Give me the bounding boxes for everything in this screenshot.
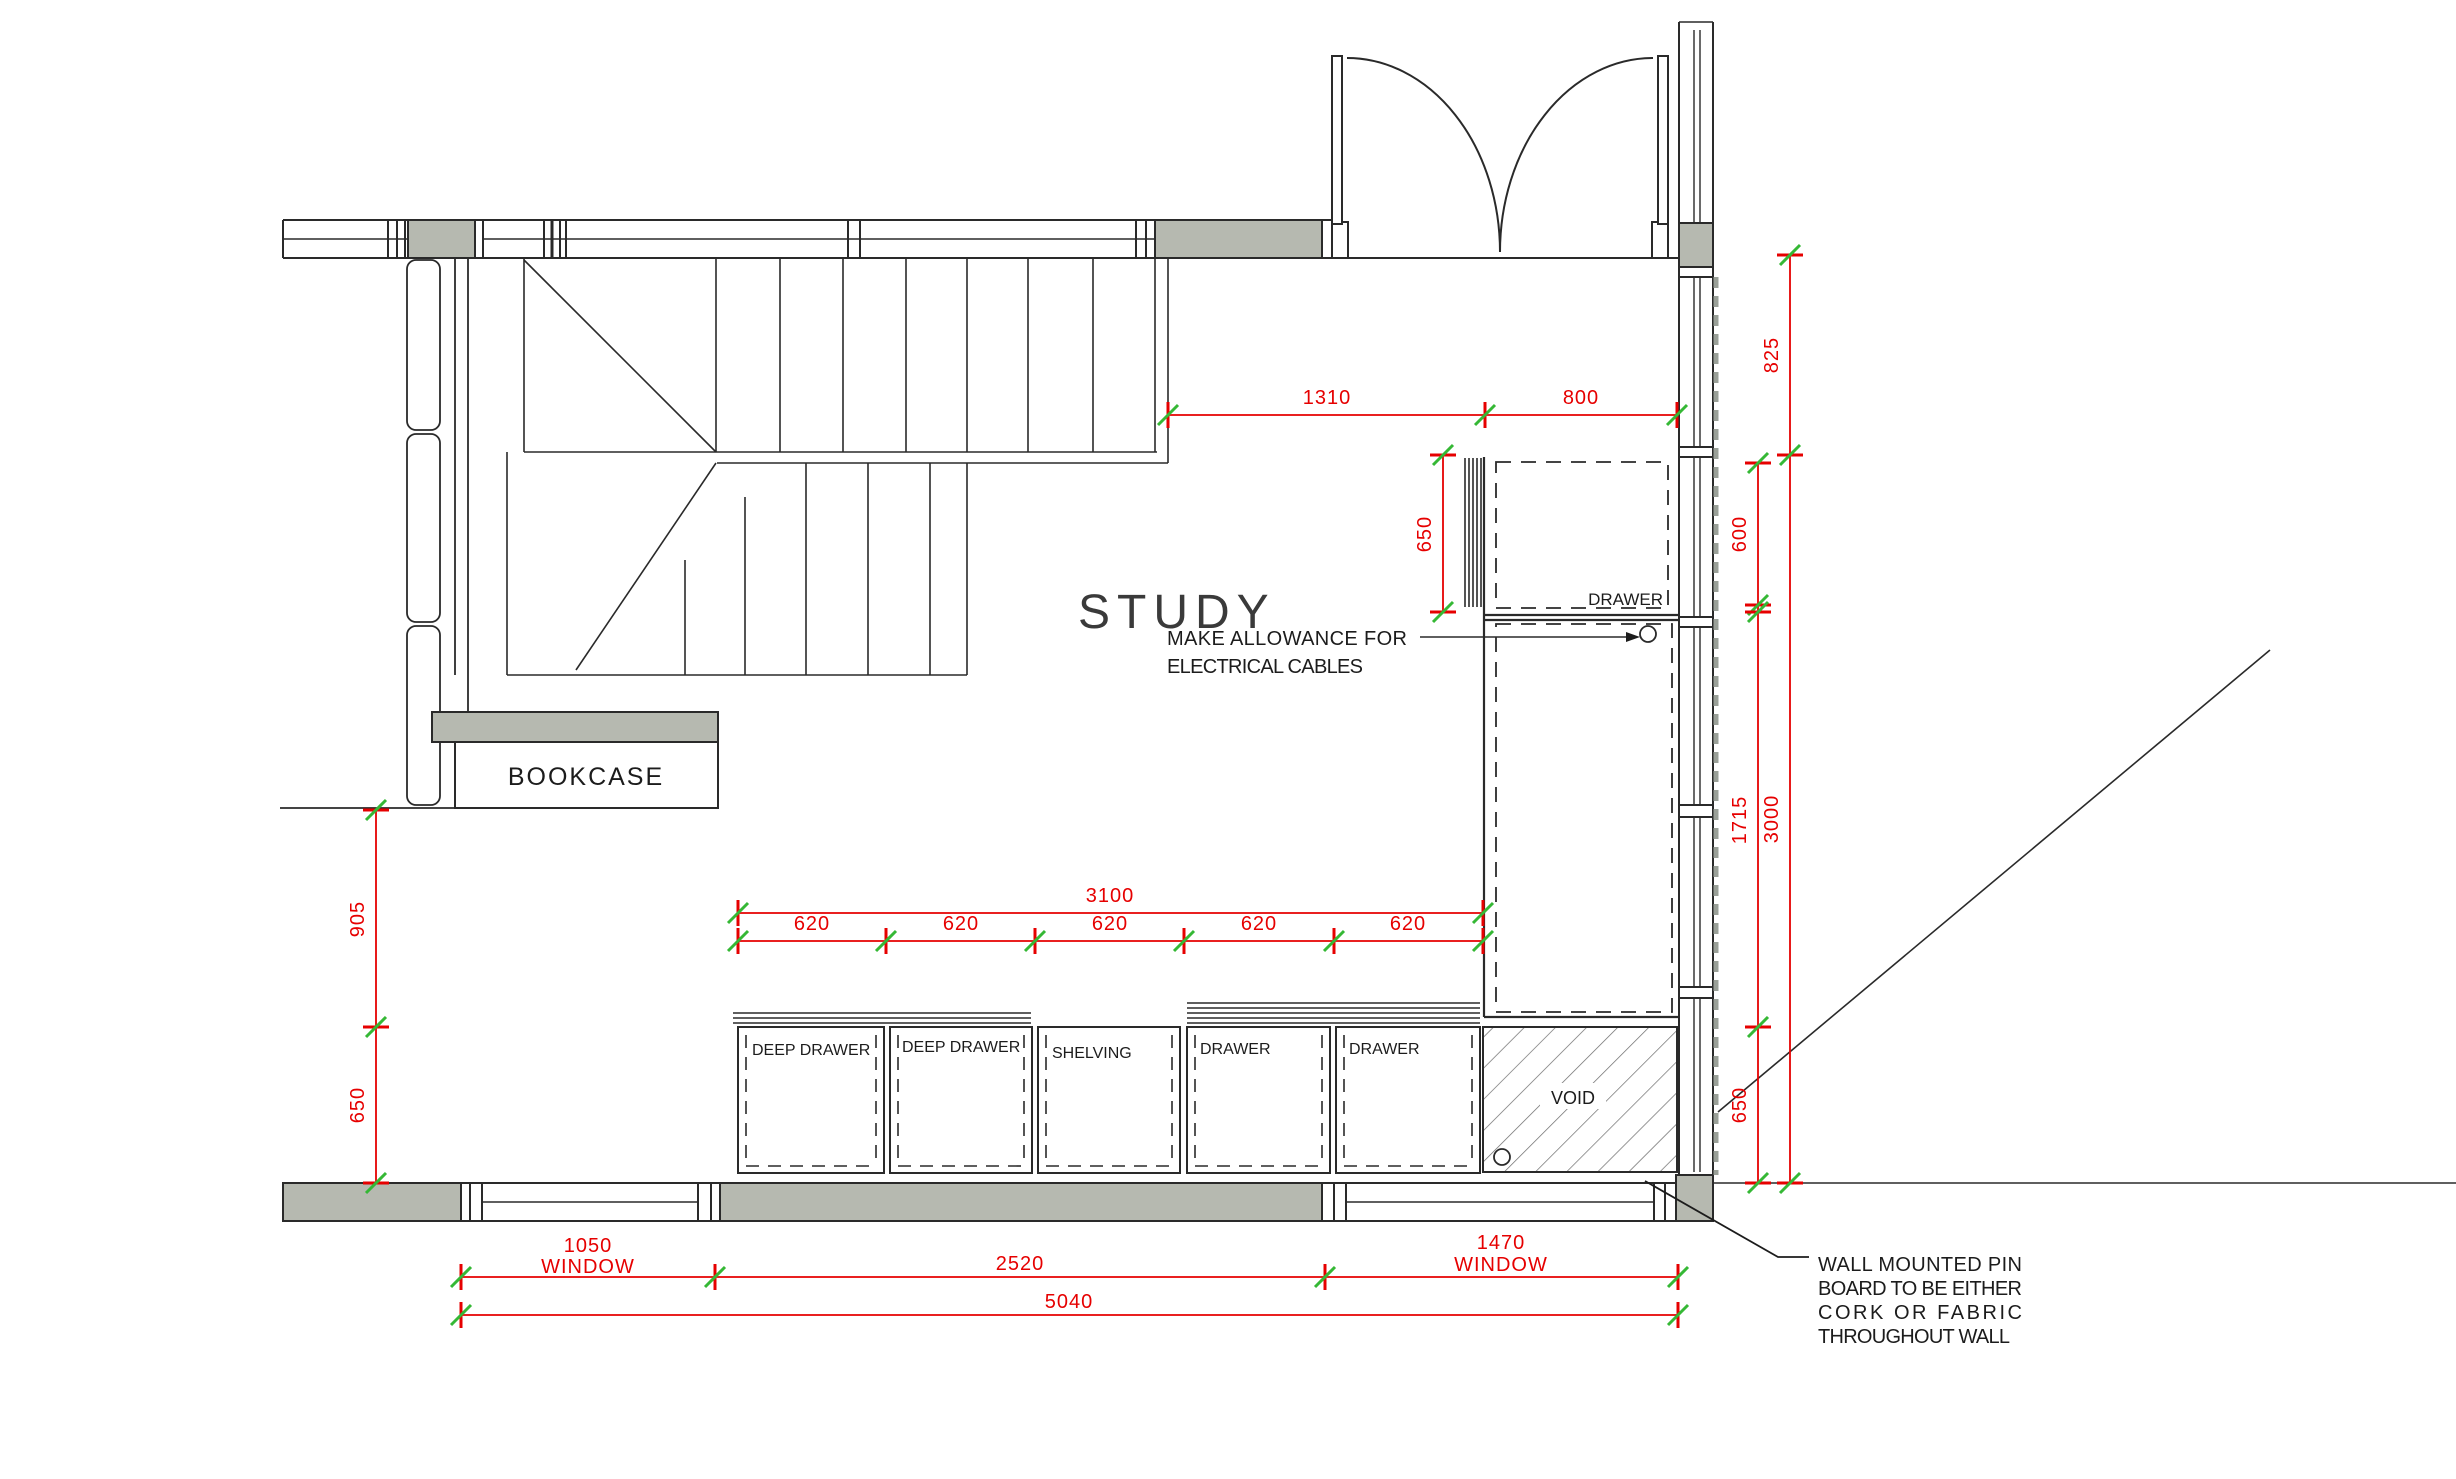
double-door <box>1332 56 1668 258</box>
wall-panel <box>407 434 440 622</box>
dim-600: 600 <box>1729 516 1751 552</box>
stair-winder-diagonal-lower <box>576 463 716 670</box>
leader-line <box>1645 1181 1809 1257</box>
dim-800: 800 <box>1563 387 1599 409</box>
cabinet-label-5: DRAWER <box>1349 1041 1420 1058</box>
dim-1050: 1050 <box>564 1235 613 1257</box>
staircase <box>507 259 1168 675</box>
dim-620-4: 620 <box>1241 913 1277 935</box>
dim-3000: 3000 <box>1761 795 1783 844</box>
svg-text:ELECTRICAL CABLES: ELECTRICAL CABLES <box>1167 656 1363 678</box>
dim-905: 905 <box>347 901 369 937</box>
desk-drawer-label: DRAWER <box>1588 590 1663 609</box>
dim-825: 825 <box>1761 337 1783 373</box>
dim-1470-window: WINDOW <box>1454 1254 1548 1276</box>
svg-text:MAKE ALLOWANCE FOR: MAKE ALLOWANCE FOR <box>1167 628 1407 650</box>
void-label: VOID <box>1551 1088 1595 1108</box>
sight-line <box>1718 650 2270 1112</box>
cable-grommet <box>1640 626 1656 642</box>
cabinet-label-3: SHELVING <box>1052 1045 1132 1062</box>
void-grommet <box>1494 1149 1510 1165</box>
door-jamb-right <box>1652 222 1668 258</box>
cabinet-label-4: DRAWER <box>1200 1041 1271 1058</box>
dim-1470: 1470 <box>1477 1232 1526 1254</box>
dim-1715: 1715 <box>1729 796 1751 845</box>
dim-1050-window: WINDOW <box>541 1256 635 1278</box>
door-jamb-left <box>1332 222 1348 258</box>
worktop-lines-left <box>733 1013 1031 1023</box>
cabinet-run <box>733 1003 1480 1173</box>
dim-620-1: 620 <box>794 913 830 935</box>
stair-winder-diagonal <box>524 260 716 452</box>
door-leaf-left <box>1332 56 1342 224</box>
floorplan-drawing: BOOKCASE DRAWER <box>0 0 2456 1479</box>
dim-620-2: 620 <box>943 913 979 935</box>
desk-lower-outline <box>1496 624 1672 1012</box>
dim-1310: 1310 <box>1303 387 1352 409</box>
drawer-unit-outline <box>1496 462 1668 608</box>
door-leaf-right <box>1658 56 1668 224</box>
dim-5040: 5040 <box>1045 1291 1094 1313</box>
desk-return <box>1420 457 1679 1017</box>
dim-620-3: 620 <box>1092 913 1128 935</box>
bookcase: BOOKCASE <box>432 712 718 808</box>
electrical-note: MAKE ALLOWANCE FOR ELECTRICAL CABLES <box>1167 628 1407 678</box>
door-swing-arc-left <box>1347 58 1500 252</box>
svg-text:BOARD TO BE EITHER: BOARD TO BE EITHER <box>1818 1278 2022 1300</box>
dim-right-650: 650 <box>1729 1087 1751 1123</box>
dim-desk-650: 650 <box>1414 516 1436 552</box>
door-swing-arc-right <box>1500 58 1653 252</box>
floorplan-canvas: BOOKCASE DRAWER <box>0 0 2456 1479</box>
svg-text:WALL MOUNTED PIN: WALL MOUNTED PIN <box>1818 1254 2022 1276</box>
flex-strip <box>1465 458 1481 607</box>
dim-2520: 2520 <box>996 1253 1045 1275</box>
worktop-lines-right <box>1187 1003 1480 1023</box>
dim-3100: 3100 <box>1086 885 1135 907</box>
cabinet-label-2: DEEP DRAWER <box>902 1039 1020 1056</box>
cabinet-label-1: DEEP DRAWER <box>752 1042 870 1059</box>
wall-panel <box>407 260 440 430</box>
svg-text:CORK OR FABRIC: CORK OR FABRIC <box>1818 1302 2022 1324</box>
dim-left-650: 650 <box>347 1087 369 1123</box>
void-area: VOID <box>1483 1027 1677 1172</box>
bookcase-label: BOOKCASE <box>508 763 664 791</box>
svg-text:THROUGHOUT WALL: THROUGHOUT WALL <box>1818 1326 2010 1348</box>
dim-620-5: 620 <box>1390 913 1426 935</box>
arrowhead <box>1626 632 1640 642</box>
